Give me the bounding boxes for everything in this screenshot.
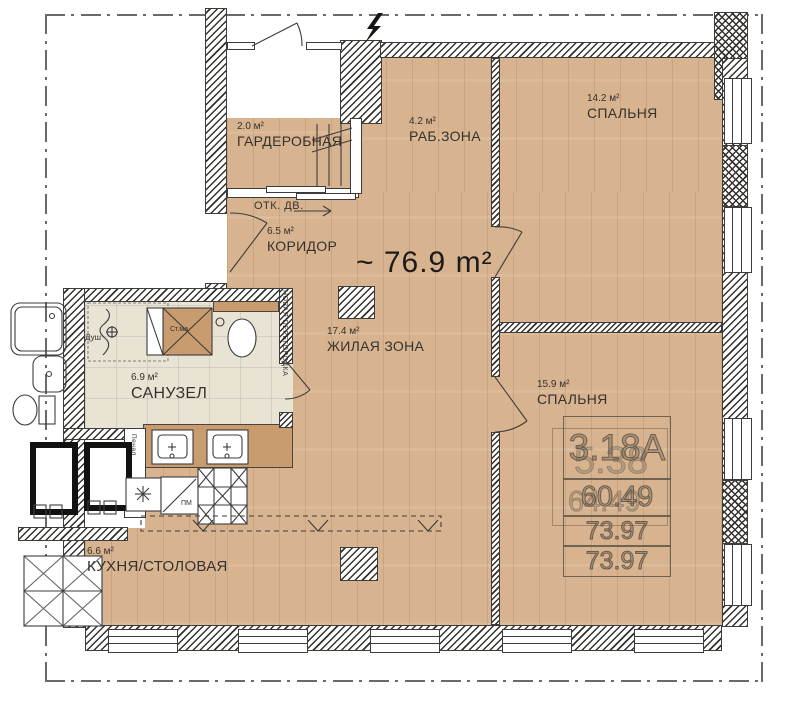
room-area: 6.9 м² [131, 372, 207, 384]
room-area: 6.6 м² [87, 546, 228, 558]
stamp-row-2: 60.49 [563, 478, 671, 517]
room-area: 14.2 м² [587, 93, 658, 105]
bathroom-door [285, 360, 310, 399]
vanity-sink-2 [207, 430, 248, 464]
lightning-icon [365, 13, 383, 43]
room-label-bedroom1: 14.2 м² СПАЛЬНЯ [587, 93, 658, 122]
bedroom2-door [495, 377, 527, 432]
floor-plan-canvas: 5.38 64.49 3.18А 60.49 73.97 73.97 2.0 м… [0, 0, 800, 707]
room-name: СПАЛЬНЯ [587, 105, 658, 122]
room-area: 6.5 м² [267, 226, 337, 238]
room-area: 4.2 м² [409, 116, 481, 128]
stamp-number-4: 73.97 [586, 547, 649, 576]
stamp-row-4: 73.97 [563, 545, 671, 577]
toilet-neighbour [13, 395, 55, 425]
room-label-bedroom2: 15.9 м² СПАЛЬНЯ [537, 379, 608, 408]
kitchen-sink [126, 478, 161, 511]
entrance-door [252, 23, 302, 46]
stamp-number-2: 60.49 [581, 481, 654, 514]
total-area-label: ~ 76.9 m² [356, 246, 493, 280]
room-area: 17.4 м² [327, 326, 424, 338]
room-name: САНУЗЕЛ [131, 384, 207, 403]
stamp-number-1: 3.18А [569, 427, 666, 469]
stamp-row-3: 73.97 [563, 515, 671, 547]
stamp-row-1: 3.18А [563, 416, 671, 480]
room-label-corridor: 6.5 м² КОРИДОР [267, 226, 337, 255]
room-name: ГАРДЕРОБНАЯ [237, 133, 342, 150]
room-label-wardrobe: 2.0 м² ГАРДЕРОБНАЯ [237, 121, 342, 150]
room-label-bathroom: 6.9 м² САНУЗЕЛ [131, 372, 207, 403]
shower-label: Душ [85, 333, 101, 342]
room-name: СПАЛЬНЯ [537, 391, 608, 408]
bedroom1-door [495, 227, 522, 277]
room-name: РАБ.ЗОНА [409, 128, 481, 145]
room-area: 2.0 м² [237, 121, 342, 133]
corridor-door [230, 213, 267, 272]
room-name: КОРИДОР [267, 238, 337, 255]
new-partition-label: НОВАЯ ПЕРЕГОРОДКА [281, 290, 288, 376]
dishwasher [161, 477, 198, 514]
vanity-sink-1 [152, 430, 193, 464]
room-label-workzone: 4.2 м² РАБ.ЗОНА [409, 116, 481, 145]
room-label-kitchen: 6.6 м² КУХНЯ/СТОЛОВАЯ [87, 546, 228, 576]
bathtub [11, 303, 66, 355]
toilet-bathroom [216, 318, 256, 357]
room-area: 15.9 м² [537, 379, 608, 391]
kitchen-cabinet-dashed [141, 516, 441, 531]
stamp-number-3: 73.97 [586, 517, 649, 546]
washing-machine-label: Ст.ма [170, 326, 188, 333]
sliding-door-label: ОТК. ДВ. [254, 200, 304, 212]
appliance-feet [34, 501, 116, 518]
dishwasher-label: ПМ [181, 500, 192, 507]
room-name: ЖИЛАЯ ЗОНА [327, 338, 424, 355]
tall-cabinet-label: Пенал [130, 434, 137, 456]
wash-basin [33, 356, 66, 392]
room-name: КУХНЯ/СТОЛОВАЯ [87, 558, 228, 576]
room-label-living: 17.4 м² ЖИЛАЯ ЗОНА [327, 326, 424, 355]
